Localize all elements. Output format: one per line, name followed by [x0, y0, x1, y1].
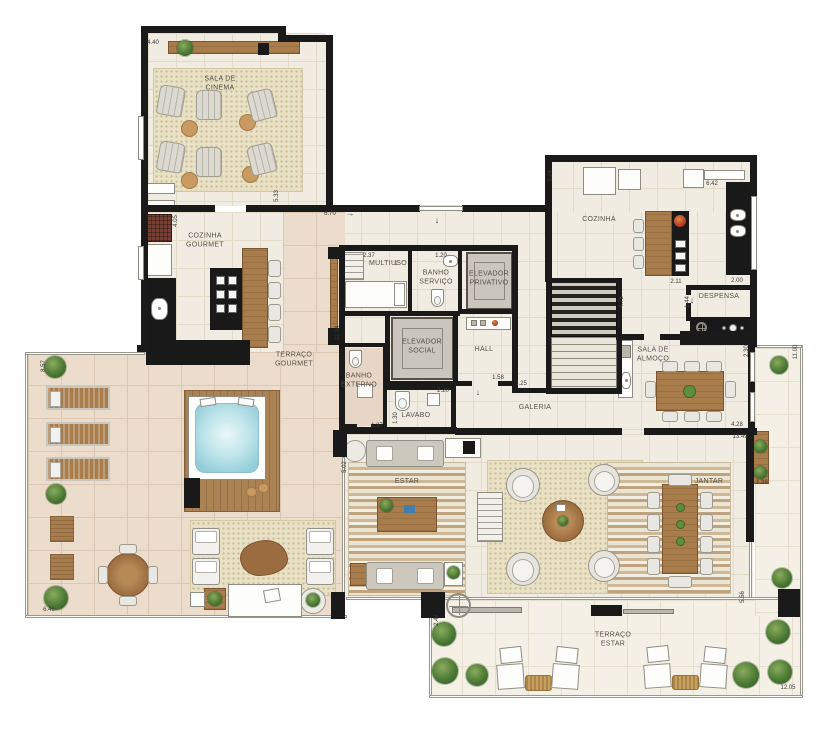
console-plant: [177, 40, 193, 56]
wall: [686, 285, 754, 290]
jantar-chair: [700, 492, 713, 509]
side-table-plant: [208, 592, 222, 606]
terrace-plant: [46, 484, 66, 504]
room-label-jantar: JANTAR: [695, 478, 724, 487]
dimension-label: 2.20: [437, 388, 449, 394]
almoco-chair: [684, 361, 700, 372]
dimension-label: 1.20: [435, 253, 447, 259]
panel-button: [471, 320, 477, 326]
wall: [545, 155, 552, 212]
cooktop-burner: [228, 276, 237, 285]
wall: [328, 247, 339, 259]
estar-sofa: [366, 440, 444, 467]
banho-servico-toilet: [431, 289, 444, 307]
room-label-banho-servico: BANHO SERVIÇO: [419, 270, 452, 287]
lounge-chair-seat: [643, 663, 672, 689]
lounge-chair-seat: [496, 663, 525, 690]
jantar-chair: [700, 536, 713, 553]
wall: [546, 278, 622, 283]
wall: [339, 245, 515, 251]
wall: [341, 427, 457, 434]
side-table-plant: [447, 566, 460, 579]
jantar-chair: [668, 576, 692, 588]
wall: [141, 26, 285, 33]
almoco-chair: [662, 411, 678, 422]
room-label-terraco-estar: TERRAÇO ESTAR: [595, 632, 631, 649]
dimension-label: 12.04: [335, 325, 341, 340]
lounge-chair-seat: [699, 663, 728, 689]
dimension-label: 12.05: [780, 685, 795, 691]
cooktop-burner: [216, 276, 225, 285]
glass-rail: [749, 540, 752, 598]
lounge-armchair: [588, 550, 620, 582]
door-arrow-icon: ↓: [394, 257, 399, 267]
sun-lounger: [46, 386, 110, 410]
lounge-table-plant: [558, 516, 568, 526]
dimension-label: 1.58: [492, 375, 504, 381]
lounge-armchair: [506, 468, 540, 502]
dimension-label: 1.37: [371, 423, 383, 429]
planter-plant: [754, 440, 767, 453]
kitchen-stool: [633, 219, 644, 233]
wall: [458, 249, 462, 313]
terrace-plant: [766, 620, 790, 644]
cinema-recliner: [196, 147, 222, 177]
kitchen-hood: [704, 170, 745, 180]
lavabo-sink: [427, 393, 440, 406]
glass-rail: [800, 345, 803, 697]
glass-rail: [342, 457, 345, 595]
dimension-label: 4.76: [619, 296, 625, 308]
kitchen-sink: [730, 209, 746, 221]
glass-rail: [346, 597, 782, 600]
dimension-label: 13.49: [732, 434, 747, 440]
glass-rail: [25, 352, 145, 355]
window: [138, 116, 144, 160]
jantar-chair: [668, 474, 692, 486]
dimension-label: 4.05: [173, 215, 179, 227]
almoco-chair: [645, 381, 656, 398]
wall: [141, 205, 215, 212]
kitchen-stool: [633, 237, 644, 251]
island-chair: [268, 326, 281, 343]
wall: [292, 205, 420, 212]
daybed-pillow: [263, 588, 281, 604]
lounge-armchair: [588, 464, 620, 496]
wall: [746, 428, 754, 542]
jantar-centerpiece: [676, 503, 685, 512]
dimension-label: 1.38: [756, 480, 768, 486]
deck-planter: [184, 478, 200, 508]
jantar-chair: [647, 492, 660, 509]
island-burner: [675, 240, 686, 248]
room-label-cozinha-gourmet: COZINHA GOURMET: [186, 233, 224, 250]
wall: [460, 309, 516, 314]
staircase-lower: [551, 337, 617, 389]
outdoor-armchair: [192, 528, 220, 555]
cinema-side-table: [181, 120, 198, 137]
wall: [680, 331, 757, 345]
window: [750, 392, 755, 422]
room-label-sala-de-almoco: SALA DE ALMOÇO: [637, 347, 669, 364]
island-burner: [675, 252, 686, 260]
terrace-stool: [50, 516, 74, 542]
wall: [339, 343, 385, 347]
side-table-plant: [306, 593, 320, 607]
door-arrow-icon: ↓: [476, 387, 481, 397]
dimension-label: 6.70: [324, 211, 336, 217]
jantar-chair: [647, 536, 660, 553]
room-label-estar: ESTAR: [395, 478, 419, 487]
despensa-knob: [722, 326, 726, 330]
wall: [451, 386, 456, 432]
terrace-plant: [44, 356, 66, 378]
kitchen-island-wood: [645, 211, 672, 276]
floor-plan: SALA DE CINEMACOZINHA GOURMETTERRAÇO GOU…: [0, 0, 838, 754]
almoco-chair: [725, 381, 736, 398]
jantar-table: [662, 484, 698, 574]
cooktop-burner: [216, 304, 225, 313]
gourmet-oven: [146, 214, 172, 242]
outdoor-side-square: [190, 592, 205, 607]
room-label-cozinha: COZINHA: [582, 216, 616, 225]
wall: [686, 285, 691, 295]
coffee-table-book: [404, 505, 415, 513]
glass-rail: [25, 352, 28, 618]
cinema-recliner: [156, 140, 187, 174]
lounge-chair-back: [646, 645, 670, 663]
cinema-recliner: [156, 84, 187, 118]
cinema-speaker: [258, 43, 269, 55]
almoco-sink: [621, 372, 631, 389]
jantar-centerpiece: [676, 520, 685, 529]
wall: [333, 430, 347, 457]
av-rack: [147, 183, 175, 194]
wicker-table: [672, 675, 699, 690]
wall: [455, 428, 622, 435]
window: [750, 352, 755, 382]
wall: [512, 313, 518, 388]
door-arrow-icon: ↓: [435, 215, 440, 225]
wall: [546, 278, 551, 394]
lounge-chair-seat: [551, 663, 580, 690]
lounge-chair-back: [499, 646, 523, 664]
jantar-chair: [700, 558, 713, 575]
room-label-hall: HALL: [475, 346, 494, 355]
cooktop-burner: [216, 290, 225, 299]
kitchen-sink: [730, 225, 746, 237]
wall: [453, 313, 458, 386]
window: [419, 206, 463, 211]
estar-sofa: [366, 562, 444, 590]
sun-lounger: [46, 422, 110, 446]
island-flowers: [674, 215, 686, 227]
almoco-bowl: [683, 385, 696, 398]
balcony-plant: [770, 356, 788, 374]
kitchen-appliance: [618, 169, 641, 190]
planter-plant: [754, 466, 767, 479]
dimension-label: 1.30: [393, 412, 399, 424]
island-chair: [268, 282, 281, 299]
lounge-table-item: [556, 504, 566, 512]
terrace-chair: [148, 566, 158, 584]
wall: [546, 390, 622, 394]
terrace-stool: [50, 554, 74, 580]
gourmet-counter-bottom: [146, 340, 250, 365]
jantar-chair: [647, 558, 660, 575]
room-label-despensa: DESPENSA: [699, 293, 740, 302]
dimension-label: 6.42: [706, 181, 718, 187]
kitchen-fridge: [583, 167, 616, 195]
banho-externo-toilet: [349, 350, 362, 368]
gourmet-sink: [151, 298, 168, 320]
gourmet-island-table: [242, 248, 268, 348]
floor-kitchen: [545, 160, 752, 212]
wall: [458, 381, 472, 386]
window: [751, 196, 757, 270]
dimension-label: 5.02: [342, 461, 348, 473]
kitchen-appliance: [683, 169, 704, 188]
wall: [339, 311, 460, 316]
wall: [616, 334, 644, 340]
glass-rail: [429, 695, 803, 698]
lavabo-toilet: [395, 391, 410, 411]
outdoor-armchair: [306, 558, 334, 585]
dimension-label: 8.57: [41, 360, 47, 372]
coffee-table-plant: [380, 499, 393, 512]
terrace-chair: [119, 544, 137, 554]
terrace-chair: [119, 596, 137, 606]
wall: [545, 207, 552, 282]
wicker-table: [525, 675, 552, 691]
room-label-terraco-gourmet: TERRAÇO GOURMET: [275, 352, 313, 369]
almoco-chair: [706, 411, 722, 422]
room-label-galeria: GALERIA: [519, 404, 551, 413]
outdoor-armchair: [192, 558, 220, 585]
lounge-chair-back: [703, 646, 727, 664]
dimension-label: 4.40: [147, 40, 159, 46]
deck-cushion: [246, 487, 257, 497]
dimension-label: 2.00: [731, 278, 743, 284]
wall: [137, 345, 149, 352]
wall: [326, 35, 333, 212]
window: [138, 246, 144, 280]
multiuso-wardrobe: [344, 252, 364, 280]
door-arrow-icon: ↓: [690, 295, 695, 305]
staircase-upper: [551, 281, 617, 337]
terrace-round-table: [106, 553, 150, 597]
glass-rail: [429, 614, 432, 697]
sun-lounger: [46, 457, 110, 481]
wall: [545, 155, 757, 162]
terrace-plant: [768, 660, 792, 684]
jantar-chair: [700, 514, 713, 531]
almoco-chair: [684, 411, 700, 422]
dimension-label: 3.25: [515, 381, 527, 387]
jantar-centerpiece: [676, 537, 685, 546]
door-arrow-icon: →: [346, 208, 355, 218]
dimension-label: 6.46: [43, 607, 55, 613]
dimension-label: 5.56: [740, 591, 746, 603]
deck-cushion: [258, 483, 269, 493]
island-chair: [268, 260, 281, 277]
island-chair: [268, 304, 281, 321]
room-label-lavabo: LAVABO: [402, 412, 431, 421]
kitchen-stool: [633, 255, 644, 269]
dimension-label: 2.11: [670, 279, 681, 285]
wall: [408, 249, 412, 313]
gourmet-fridge: [146, 244, 172, 276]
lounge-chair-back: [555, 646, 579, 664]
panel-button: [480, 320, 486, 326]
despensa-knob: [740, 326, 744, 330]
wall: [421, 592, 445, 618]
sill-planter: [591, 605, 622, 616]
wall: [512, 245, 518, 315]
almoco-chair: [706, 361, 722, 372]
cooktop-burner: [228, 304, 237, 313]
terrace-plant: [733, 662, 759, 688]
room-label-sala-de-cinema: SALA DE CINEMA: [204, 76, 235, 93]
wall: [462, 205, 550, 212]
balcony-plant: [772, 568, 792, 588]
room-label-banho-externo: BANHO EXTERNO: [341, 373, 377, 390]
wall: [778, 589, 800, 617]
terrace-plant: [432, 658, 458, 684]
dimension-label: 2.37: [363, 253, 375, 259]
terrace-plant: [466, 664, 488, 686]
cinema-recliner: [196, 90, 222, 120]
room-label-elevador-social: ELEVADOR SOCIAL: [402, 339, 442, 356]
dimension-label: 4.28: [731, 422, 743, 428]
estar-round-table: [344, 440, 366, 462]
dimension-label: 2.30: [744, 345, 750, 357]
cooktop-burner: [228, 290, 237, 299]
terrace-chair: [98, 566, 108, 584]
room-label-elevador-privativo: ELEVADOR PRIVATIVO: [469, 271, 509, 288]
room-label-multiuso: MULTIUSO: [369, 260, 407, 269]
sliding-door-panel: [330, 257, 338, 331]
dimension-label: 3.24: [548, 170, 554, 182]
island-burner: [675, 264, 686, 272]
jantar-chair: [647, 514, 660, 531]
console-object: [463, 441, 475, 454]
dimension-label: 5.33: [274, 190, 280, 202]
sill-planter: [623, 609, 674, 614]
floor-medallion: [446, 593, 471, 618]
dimension-label: 11.00: [793, 345, 799, 360]
panel-light: [492, 320, 498, 326]
outdoor-armchair: [306, 528, 334, 555]
gourmet-cooktop: [210, 268, 242, 330]
jacuzzi-water: [195, 403, 259, 473]
lounge-armchair: [506, 552, 540, 586]
bed-pillow: [394, 283, 405, 306]
room-divider-shelf: [477, 492, 503, 542]
dimension-label: 2.44: [434, 614, 440, 626]
wall: [331, 592, 345, 619]
